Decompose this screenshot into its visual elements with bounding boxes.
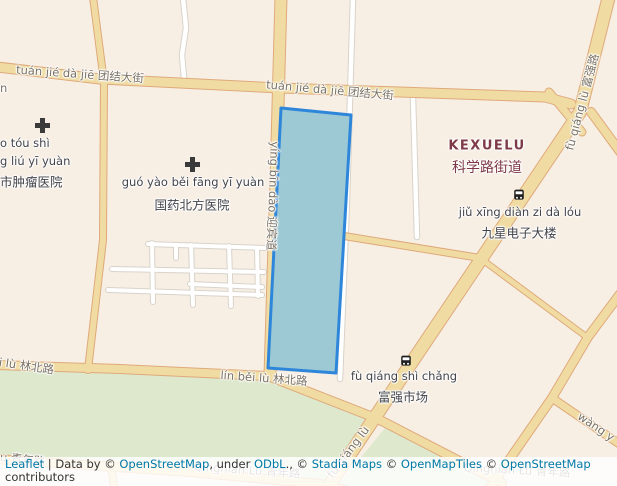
attribution-text: , under (209, 457, 254, 471)
selected-area-polygon[interactable] (268, 108, 351, 373)
map-tiles (0, 0, 617, 486)
attribution-text: © (482, 457, 501, 471)
hospital-cross-icon (185, 157, 200, 172)
hospital-cross-icon (35, 118, 50, 133)
odbl-link[interactable]: ODbL (254, 457, 286, 471)
stadia-maps-link[interactable]: Stadia Maps (312, 457, 382, 471)
openstreetmap-link[interactable]: OpenStreetMap (119, 457, 209, 471)
map-canvas[interactable]: tuán jié dà jiē 团结大街 tuán jié dà jiē 团结大… (0, 0, 617, 486)
attribution-text: contributors (5, 470, 75, 484)
attribution-text: © (382, 457, 401, 471)
attribution-text: ., © (286, 457, 312, 471)
attribution-bar: Leaflet | Data by © OpenStreetMap, under… (0, 457, 617, 486)
openmaptiles-link[interactable]: OpenMapTiles (401, 457, 482, 471)
bus-stop-icon (513, 186, 525, 198)
bus-stop-icon (400, 352, 412, 364)
openstreetmap-link[interactable]: OpenStreetMap (501, 457, 591, 471)
attribution-text: | Data by © (44, 457, 119, 471)
leaflet-link[interactable]: Leaflet (5, 457, 44, 471)
